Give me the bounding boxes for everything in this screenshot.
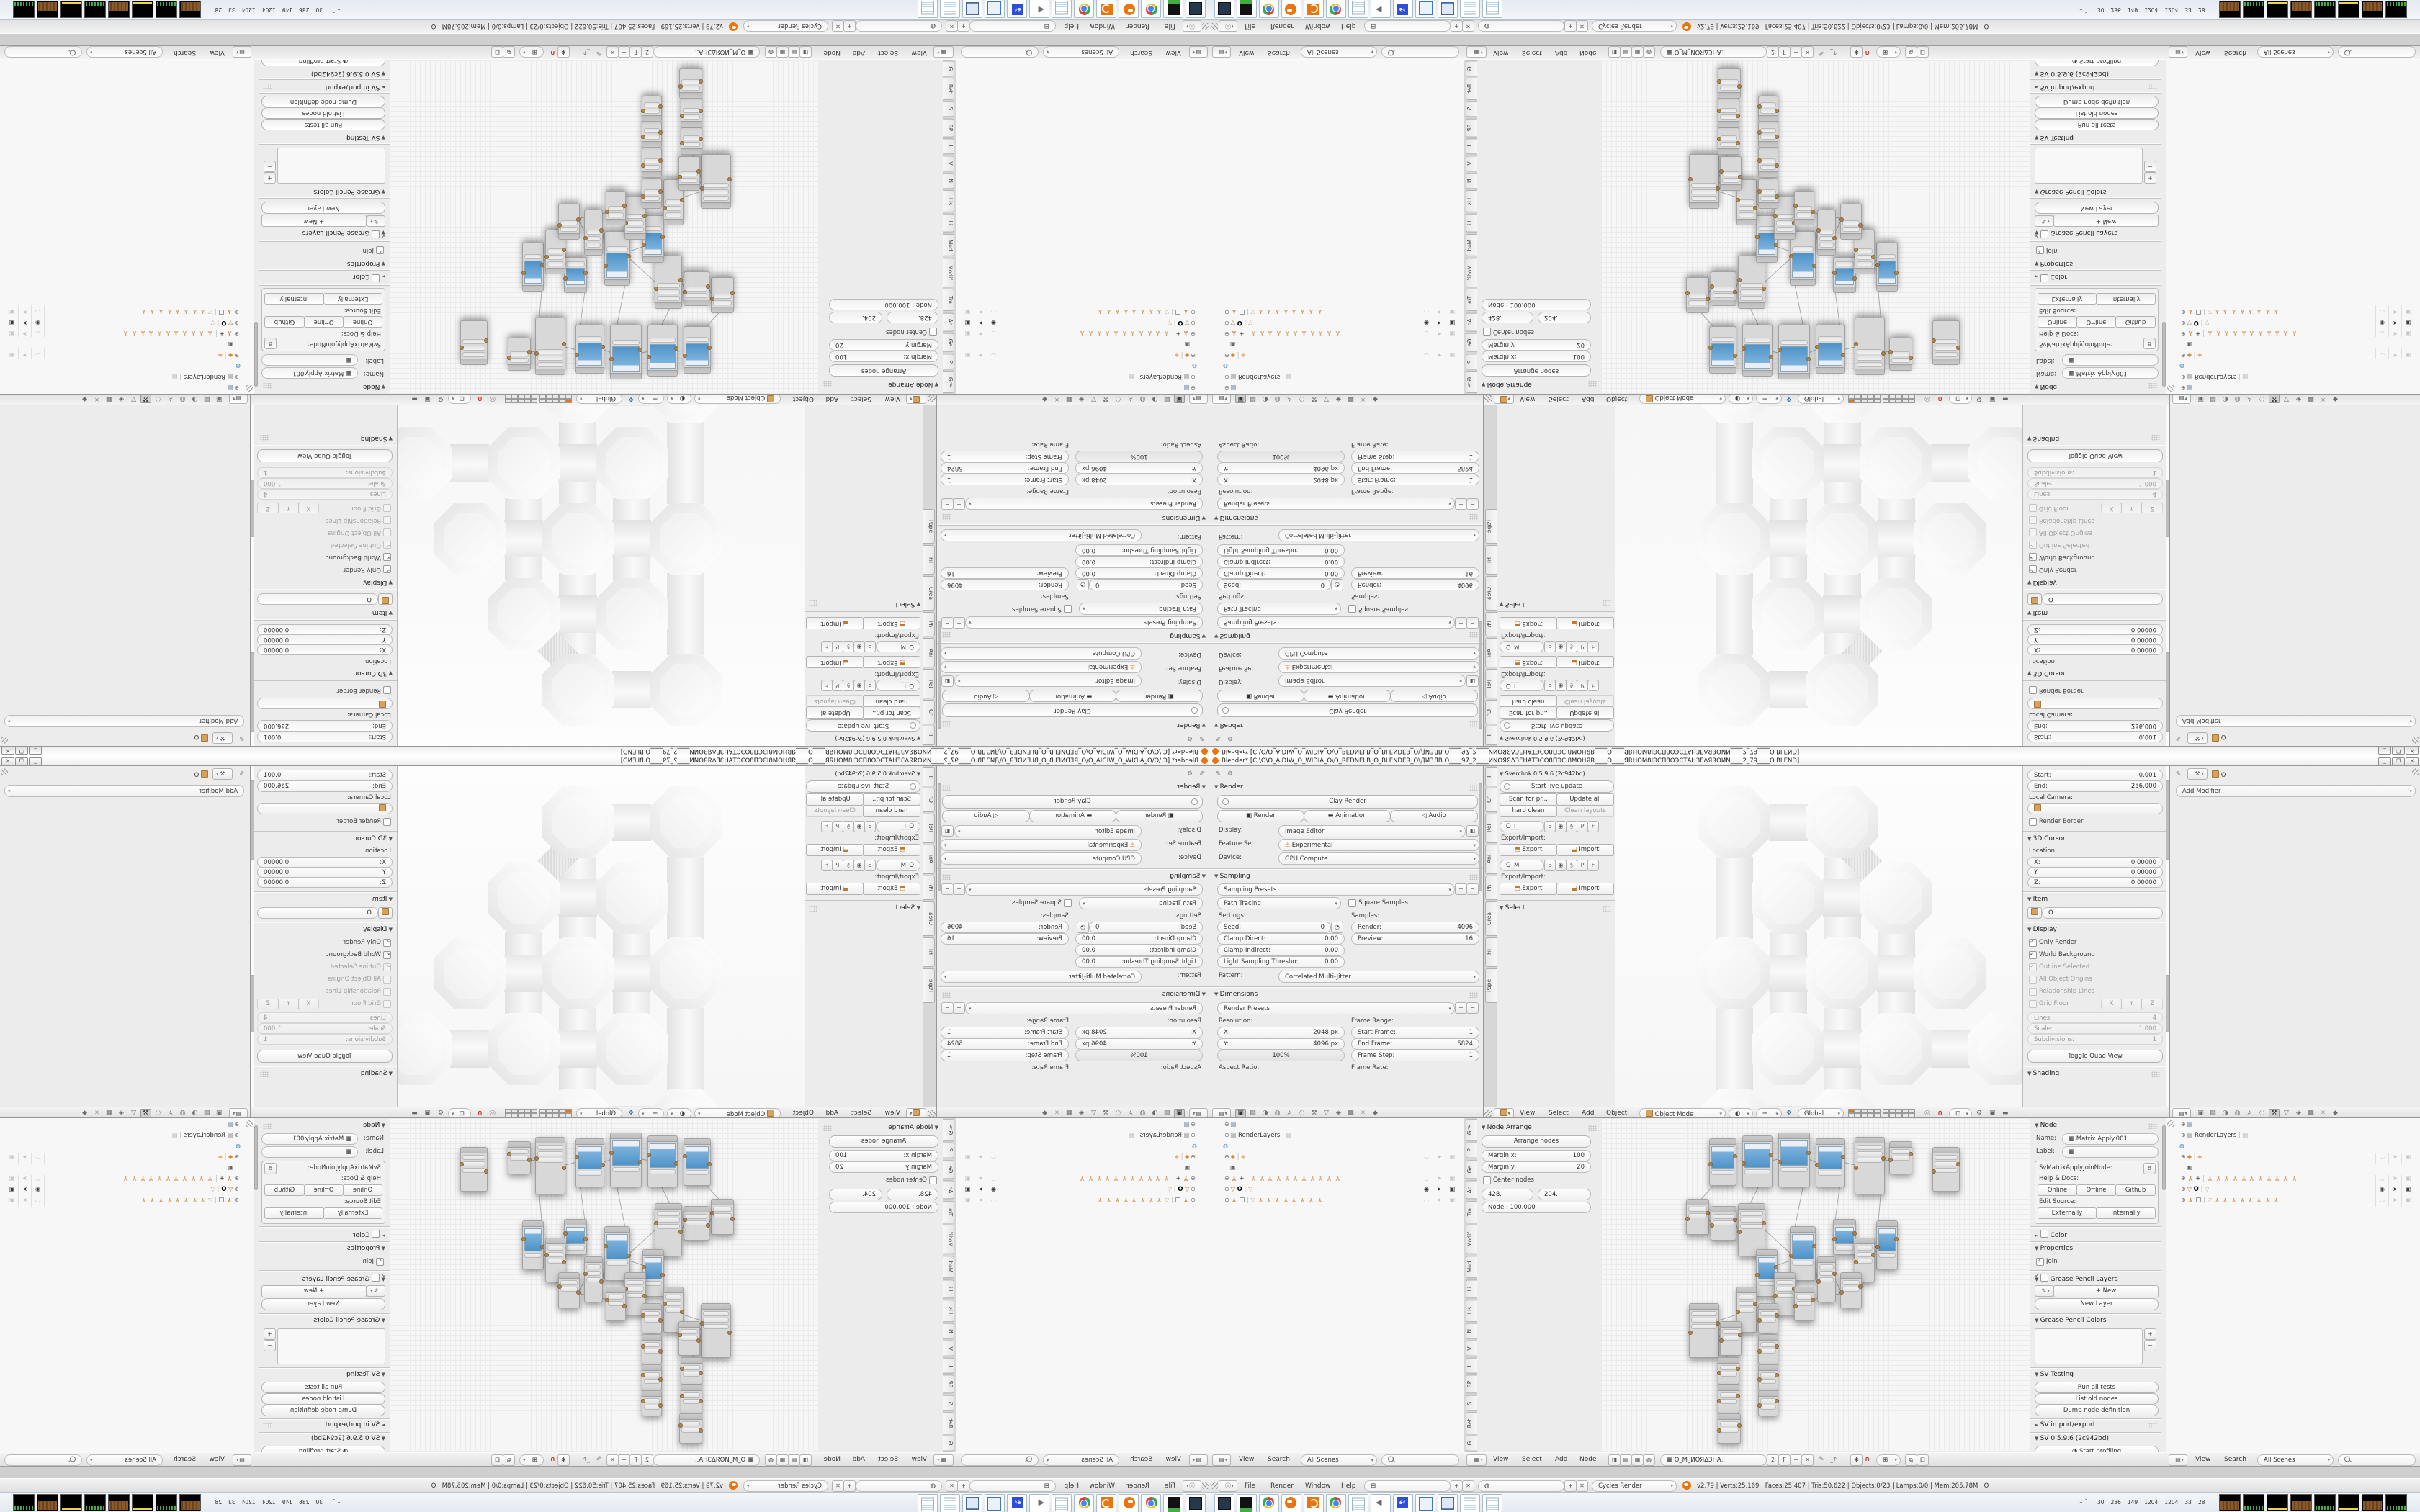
bake-button[interactable]: B (864, 860, 876, 871)
properties-tab-icon-9[interactable]: ▦ (1064, 1109, 1075, 1117)
properties-tab-icon-3[interactable]: ◍ (177, 1109, 188, 1117)
properties-tab-icon-4[interactable]: ◬ (165, 1109, 176, 1117)
outline-selected-checkbox[interactable] (383, 963, 391, 971)
shelf-tab-ge[interactable]: Ge (942, 333, 954, 352)
sv-testing-panel[interactable]: SV Testing (346, 1371, 385, 1378)
add-preset-button[interactable]: + (1455, 498, 1467, 510)
delete-scene-button[interactable]: ✕ (1576, 20, 1588, 32)
search-input[interactable] (1381, 46, 1459, 58)
center-nodes-checkbox[interactable] (929, 1176, 937, 1184)
menu-object[interactable]: Object (1606, 1107, 1627, 1119)
properties-panel[interactable]: Properties (347, 1245, 385, 1252)
node-label-field[interactable]: ▦ (261, 354, 358, 366)
tree-users-button[interactable]: 2 (641, 46, 653, 58)
taskbar-icon-chrome[interactable] (1259, 1494, 1279, 1512)
grease-pencil-colors-panel[interactable]: Grease Pencil Colors (313, 188, 385, 195)
menu-select[interactable]: Select (1549, 1107, 1569, 1119)
color-panel[interactable]: Color (353, 273, 385, 282)
grid-floor-checkbox[interactable] (2029, 504, 2037, 512)
window-title-bar[interactable]: Blender* [C:\O\O_AIDIW_O_WIDIA_O\O_REDNE… (1210, 745, 2420, 756)
shelf-tab-n[interactable]: N (942, 1323, 954, 1339)
device-dropdown[interactable]: GPU Compute (941, 647, 1142, 660)
clay-render-radio[interactable] (1191, 798, 1198, 805)
snap-magnet-icon[interactable]: ∩ (478, 1107, 483, 1119)
add-color-button[interactable]: + (2144, 1328, 2156, 1340)
axis-y-button[interactable]: Y (2121, 503, 2142, 513)
start-frame-field[interactable]: Start Frame:1 (1351, 474, 1479, 485)
sv-import-export-panel[interactable]: SV import/export (325, 84, 385, 91)
axis-x-button[interactable]: X (298, 999, 319, 1009)
panel-drag-dots[interactable] (1603, 906, 1611, 912)
delete-layout-button[interactable]: ✕ (946, 1480, 958, 1492)
grease-pencil-icon[interactable]: ✎ (2035, 1285, 2053, 1297)
properties-tab-icon-8[interactable]: ◈ (2293, 1109, 2304, 1117)
sverchok-node[interactable] (1758, 122, 1778, 148)
hard-clean-button[interactable]: hard clean (863, 695, 920, 707)
system-monitor-graph[interactable] (2243, 1, 2264, 18)
shelf-tab-mod[interactable]: Mod (1466, 1256, 1478, 1278)
system-monitor-graph[interactable] (132, 1, 153, 18)
pin-icon[interactable]: ✎ (1216, 770, 1221, 778)
toggle-quad-view-button[interactable]: Toggle Quad View (2027, 1050, 2163, 1063)
panel-dimensions[interactable]: Dimensions (1214, 991, 1258, 998)
menu-view[interactable]: View (1520, 393, 1535, 405)
bake-button[interactable]: B (1544, 680, 1556, 691)
render-camera-icon[interactable]: ▣ (1989, 1107, 1996, 1119)
area-corner-widget[interactable] (2412, 768, 2419, 775)
menu-view[interactable]: View (1166, 46, 1181, 59)
snap-magnet-icon[interactable]: ∩ (1865, 46, 1870, 59)
system-monitor-graph[interactable] (2219, 1, 2241, 18)
f-button[interactable]: F (1587, 680, 1599, 691)
sverchok-panel[interactable]: Sverchok 0.5.9.6 (2c942bd) (1500, 735, 1585, 742)
bake-button[interactable]: B (1544, 821, 1556, 832)
lock-icon[interactable]: ◧ (941, 675, 954, 687)
all-object-origins-checkbox[interactable] (2029, 528, 2037, 536)
info-editor-selector[interactable]: ⓘ (1219, 1480, 1237, 1492)
shelf-tab-rel[interactable]: Rel (923, 669, 935, 698)
properties-tab-icon-2[interactable]: ◑ (1149, 1109, 1160, 1117)
shelf-tab-bp[interactable]: BP (1466, 1374, 1478, 1393)
system-monitor-graph[interactable] (37, 1494, 58, 1511)
viewport-shading-dropdown[interactable]: ◐ (1729, 1108, 1753, 1119)
sverchok-node[interactable] (460, 320, 488, 365)
shelf-tab-t[interactable]: T (1485, 767, 1497, 786)
outliner-item[interactable]: ⊕◆ | ◆ ◡➤▣ (1210, 1153, 1464, 1164)
editor-type-selector[interactable]: ▤ (2172, 392, 2191, 404)
orientation-dropdown[interactable]: Global (1798, 393, 1844, 404)
node-editor[interactable]: GrePGeAnTraModifModLiLisNVLBPSBetG Node … (254, 47, 956, 394)
area-corner-widget[interactable] (1211, 23, 1218, 30)
outliner-item-O[interactable]: ⊕▽ O | ▽ ◉➤▣ (2166, 1186, 2420, 1197)
tree-type-texture-icon[interactable]: ▦ (1631, 1454, 1644, 1466)
menu-view[interactable]: View (2195, 46, 2210, 59)
show-eye-icon[interactable]: ◉ (1555, 821, 1567, 832)
system-monitor-graph[interactable] (2338, 1, 2359, 18)
toggle-quad-view-button[interactable]: Toggle Quad View (257, 449, 393, 462)
all-object-origins-checkbox[interactable] (2029, 976, 2037, 984)
menu-render[interactable]: Render (1126, 19, 1149, 33)
start-profiling-button[interactable]: ◔ Start profiling (261, 1446, 385, 1452)
system-monitor-graph[interactable] (2290, 1, 2312, 18)
add-layout-button[interactable]: + (1451, 20, 1463, 32)
fake-user-button[interactable]: F (629, 46, 642, 58)
grease-pencil-layers-panel[interactable]: Grease Pencil Layers (2035, 1274, 2117, 1283)
display-mode-dropdown[interactable]: All Scenes (1301, 1454, 1377, 1466)
outliner-tree[interactable]: ⊕▤⊕▤ RenderLayers | ▤ ◍⊕◆ | ◆ ◡➤▣▣⊕Y + |… (1210, 74, 1464, 391)
cursor-z-field[interactable]: Z:0.00000 (257, 877, 393, 888)
menu-view[interactable]: View (1239, 46, 1254, 59)
sverchok-node[interactable] (1833, 257, 1856, 293)
search-input[interactable] (4, 1454, 82, 1466)
outliner-item-O[interactable]: ⊕▽ O | ▽ ◉➤▣ (2166, 315, 2420, 326)
local-camera-field[interactable] (2027, 803, 2163, 814)
wrench-breadcrumb-icon[interactable]: ⚒ (212, 768, 233, 780)
sverchok-node[interactable] (701, 154, 731, 209)
panel-drag-dots[interactable] (263, 1123, 272, 1129)
light-sampling-threshold-field[interactable]: Light Sampling Thresho:0.00 (1075, 544, 1203, 556)
run-all-tests-button[interactable]: Run all tests (2035, 1382, 2159, 1393)
taskbar-icon-notepad[interactable] (1348, 0, 1368, 18)
screen-layout-selector[interactable]: ⊞ (969, 1480, 1056, 1492)
taskbar-icon-floppy-64[interactable]: 64 (1393, 0, 1413, 18)
menu-view[interactable]: View (210, 46, 225, 59)
outliner-tree[interactable]: ⊕▤⊕▤ RenderLayers | ▤ ◍⊕◆ | ◆ ◡➤▣▣⊕Y + |… (0, 1121, 254, 1438)
sverchok-node[interactable] (642, 148, 662, 178)
minimize-button[interactable]: _ (2378, 757, 2391, 766)
wrench-breadcrumb-icon[interactable]: ⚒ (212, 732, 233, 744)
outliner-item-RenderLayers[interactable]: ⊕▤ RenderLayers | ▤ (956, 369, 1210, 380)
panel-drag-dots[interactable] (942, 874, 951, 880)
display-panel[interactable]: Display (2027, 926, 2057, 933)
pivot-dropdown[interactable]: ✛ (638, 1108, 664, 1119)
snap-mode-dropdown[interactable]: ⊞ (519, 1454, 544, 1466)
grease-pencil-layers-panel[interactable]: Grease Pencil Layers (2035, 229, 2117, 238)
search-input[interactable] (2338, 1454, 2416, 1466)
f-button[interactable]: F (821, 680, 833, 691)
y-offset-field[interactable]: 204. (829, 312, 882, 323)
tools-icon[interactable]: ⚙ (1227, 770, 1233, 778)
taskbar-icon-notepad-3[interactable] (1482, 0, 1502, 18)
grease-pencil-icon[interactable]: ✎ (2035, 215, 2053, 227)
sv-testing-panel[interactable]: SV Testing (2035, 134, 2074, 141)
grid-scale-field[interactable]: Scale:1.000 (257, 478, 393, 489)
properties-tab-icon-9[interactable]: ▦ (1064, 395, 1075, 403)
menu-file[interactable]: File (1245, 1479, 1255, 1493)
sverchok-node[interactable] (535, 318, 565, 375)
node-tree-selector[interactable]: ▦ O_M_ИОЯΔЗНА... (1660, 46, 1767, 58)
offline-button[interactable]: Offline (304, 316, 344, 328)
shelf-tab-bet[interactable]: Bet (942, 1412, 954, 1434)
render-engine-selector[interactable]: Cycles Render (743, 1480, 828, 1492)
render-border-checkbox[interactable] (2029, 686, 2037, 694)
render-samples-field[interactable]: Render:4096 (941, 579, 1069, 590)
remove-preset-button[interactable]: − (1466, 883, 1479, 895)
shelf-tab-grea[interactable]: Grea (923, 576, 935, 611)
shading-panel[interactable]: Shading (2027, 1070, 2059, 1077)
taskbar-icon-notepad[interactable] (1052, 1494, 1072, 1512)
gp-new-button[interactable]: + New (2053, 215, 2159, 227)
scene-selector[interactable]: ◍ (1478, 1480, 1564, 1492)
new-tree-button[interactable]: + (618, 46, 630, 58)
shelf-tab-s[interactable]: S (1466, 1395, 1478, 1411)
cursor-x-field[interactable]: X:0.00000 (257, 644, 393, 655)
node-shelf-tabs[interactable]: GrePGeAnTraModifModLiLisNVLBPSBetG (1464, 1118, 1477, 1452)
properties-tab-icon-3[interactable]: ◍ (177, 395, 188, 403)
taskbar-icon-screen-capture[interactable] (1214, 0, 1234, 18)
item-panel[interactable]: Item (372, 896, 393, 903)
layers-grid[interactable] (505, 395, 572, 403)
display-mode-dropdown[interactable]: All Scenes (2257, 1454, 2334, 1466)
auto-render-bug-icon[interactable]: ✱ (557, 1454, 570, 1466)
seed-field[interactable]: Seed:0 (1089, 579, 1203, 590)
clip-start-field[interactable]: Start:0.001 (2027, 770, 2163, 781)
sverchok-node[interactable] (1742, 325, 1773, 377)
remove-preset-button[interactable]: − (1466, 617, 1479, 629)
outliner-item[interactable]: ▣ (2166, 1164, 2420, 1175)
taskbar-icon-removable-drive[interactable] (1163, 0, 1183, 18)
editor-type-selector[interactable]: ▤ (2169, 1454, 2187, 1466)
animate-icon[interactable]: § (1566, 680, 1577, 691)
properties-tab-icon-7[interactable]: ▽ (1321, 395, 1332, 403)
p-button[interactable]: P (832, 641, 843, 652)
search-input[interactable] (4, 46, 82, 58)
editor-type-selector[interactable]: ▦ (933, 1454, 954, 1466)
online-button[interactable]: Online (343, 1184, 382, 1196)
tool-shelf-tabs[interactable]: TCrRelAniPhGreaFilPape (923, 766, 936, 1107)
sverchok-node[interactable] (558, 204, 580, 240)
sverchok-panel[interactable]: Sverchok 0.5.9.6 (2c942bd) (835, 770, 920, 777)
sverchok-node[interactable] (1738, 256, 1765, 309)
panel-drag-dots[interactable] (2148, 84, 2157, 89)
paste-nodes-icon[interactable]: ⧠ (1917, 1454, 1929, 1466)
sverchok-node[interactable] (522, 1220, 544, 1269)
properties-tab-icon-4[interactable]: ◬ (1284, 1109, 1295, 1117)
scrollbar[interactable] (1479, 621, 1482, 729)
shelf-tab-p[interactable]: P (1466, 354, 1478, 369)
sverchok-node[interactable] (1720, 1321, 1742, 1356)
frame-step-field[interactable]: Frame Step:1 (941, 451, 1069, 462)
p-button[interactable]: P (1577, 680, 1588, 691)
properties-tab-icon-8[interactable]: ◈ (116, 1109, 127, 1117)
offline-button[interactable]: Offline (304, 1184, 344, 1196)
properties-panel[interactable]: Properties (2035, 1245, 2073, 1252)
taskbar-icon-image-viewer[interactable] (1415, 1494, 1435, 1512)
remove-preset-button[interactable]: − (941, 498, 954, 510)
node-graph-canvas[interactable] (1601, 60, 2030, 394)
properties-tab-icon-3[interactable]: ◍ (1272, 1109, 1283, 1117)
menu-search[interactable]: Search (1130, 1453, 1152, 1466)
properties-tabs[interactable]: ▣▤◑◍◬◌⚒▽◈▦✳◆ (1234, 1108, 1381, 1118)
sverchok-node[interactable] (1833, 1219, 1856, 1255)
node-distance-field[interactable]: Node : 100.000 (1482, 299, 1591, 310)
node-panel[interactable]: Node (2035, 1122, 2057, 1129)
auto-render-bug-icon[interactable]: ✱ (557, 46, 570, 58)
outliner-item-□[interactable]: ⊕Y □ | ▽ Y Y Y Y Y Y Y Y ◡➤▣ (0, 1197, 254, 1207)
copy-icon[interactable]: ⧉ (2143, 338, 2156, 349)
online-button[interactable]: Online (343, 316, 382, 328)
taskbar-icon-notepad[interactable] (1348, 1494, 1368, 1512)
sverchok-node[interactable] (1711, 1206, 1736, 1241)
grid-scale-field[interactable]: Scale:1.000 (257, 1023, 393, 1034)
proportional-edit-icon[interactable]: ◎ (1924, 1107, 1930, 1119)
menu-help[interactable]: Help (1341, 19, 1356, 33)
outliner-item[interactable]: ⊕◆ | ◆ ◡➤▣ (2166, 1153, 2420, 1164)
shelf-tab-v[interactable]: V (1466, 1341, 1478, 1356)
sverchok-node[interactable] (558, 1272, 580, 1308)
sampling-presets-dropdown[interactable]: Sampling Presets (965, 616, 1203, 629)
menu-view[interactable]: View (912, 46, 927, 59)
sverchok-node[interactable] (1889, 1141, 1912, 1174)
delete-layout-button[interactable]: ✕ (946, 20, 958, 32)
sverchok-node[interactable] (701, 1303, 731, 1358)
sverchok-node[interactable] (642, 1364, 662, 1390)
cursor-panel[interactable]: 3D Cursor (2027, 670, 2066, 677)
outliner-item-RenderLayers[interactable]: ⊕▤ RenderLayers | ▤ (1210, 1132, 1464, 1143)
object-icon-button[interactable] (378, 907, 393, 919)
clay-render-button[interactable]: Clay Render (1217, 795, 1478, 809)
outliner-item[interactable]: ⊕▤ (956, 380, 1210, 391)
outline-selected-checkbox[interactable] (2029, 541, 2037, 549)
layers-grid[interactable] (1848, 1109, 1915, 1117)
taskbar-icon-notepad-3[interactable] (918, 1494, 938, 1512)
snap-mode-dropdown[interactable]: ⊞ (519, 46, 544, 58)
clamp-direct-field[interactable]: Clamp Direct:0.00 (1217, 567, 1345, 579)
shelf-tab-ph[interactable]: Ph (923, 876, 935, 900)
integrator-dropdown[interactable]: Path Tracing (1217, 897, 1341, 909)
outliner-item[interactable]: ⊕◆ | ◆ ◡➤▣ (2166, 348, 2420, 359)
editor-type-selector[interactable]: ▤ (229, 392, 248, 404)
list-old-nodes-button[interactable]: List old nodes (2035, 1393, 2159, 1405)
light-sampling-threshold-field[interactable]: Light Sampling Thresho:0.00 (1217, 544, 1345, 556)
panel-drag-dots[interactable] (1469, 992, 1478, 998)
render-camera-icon[interactable]: ▣ (424, 393, 431, 405)
editor-type-selector[interactable]: ▤ (233, 46, 251, 58)
taskbar-icon-chrome-2[interactable] (1326, 0, 1346, 18)
sverchok-node[interactable] (1689, 154, 1719, 209)
outliner-item[interactable]: ⊕▤ (1210, 1121, 1464, 1132)
new-layer-button[interactable]: New Layer (261, 202, 385, 214)
properties-tab-icon-5[interactable]: ◌ (1113, 1109, 1124, 1117)
outliner-item[interactable]: ◍ (1210, 1143, 1464, 1153)
start-live-update-button[interactable]: Start live update (1500, 719, 1614, 732)
new-layer-button[interactable]: New Layer (261, 1298, 385, 1310)
menu-file[interactable]: File (1245, 19, 1255, 33)
grid-scale-field[interactable]: Scale:1.000 (2027, 478, 2163, 489)
animation-button[interactable]: ▬ Animation (1029, 690, 1116, 702)
render-button[interactable]: ▣ Render (1116, 810, 1203, 822)
audio-button[interactable]: ◁ Audio (942, 810, 1030, 822)
sverchok-node[interactable] (1932, 320, 1960, 365)
outliner-item[interactable]: ⊕◆ | ◆ ◡➤▣ (956, 1153, 1210, 1164)
shelf-tab-rel[interactable]: Rel (923, 814, 935, 843)
delete-scene-button[interactable]: ✕ (832, 20, 844, 32)
render-engine-selector[interactable]: Cycles Render (743, 20, 828, 32)
properties-tab-icon-3[interactable]: ◍ (1272, 395, 1283, 403)
shelf-tab-fil[interactable]: Fil (1485, 937, 1497, 967)
internally-button[interactable]: Internally (2096, 293, 2156, 305)
device-dropdown[interactable]: GPU Compute (1278, 647, 1479, 660)
grid-scale-field[interactable]: Scale:1.000 (2027, 1023, 2163, 1034)
start-profiling-button[interactable]: ◔ Start profiling (261, 60, 385, 66)
paste-nodes-icon[interactable]: ⧠ (491, 1454, 503, 1466)
import-button[interactable]: ⬓ Import (1556, 617, 1614, 629)
delete-scene-button[interactable]: ✕ (832, 1480, 844, 1492)
taskbar-icon-floppy-64[interactable]: 64 (1007, 1494, 1027, 1512)
toggle-quad-view-button[interactable]: Toggle Quad View (2027, 449, 2163, 462)
area-corner-widget[interactable] (928, 395, 936, 402)
outliner-item[interactable]: ⊕▤ (956, 1121, 1210, 1132)
sverchok-node[interactable] (564, 257, 587, 293)
import-button[interactable]: ⬓ Import (1556, 883, 1614, 895)
sv-testing-panel[interactable]: SV Testing (346, 134, 385, 141)
add-preset-button[interactable]: + (1455, 1002, 1467, 1014)
editor-type-selector[interactable]: ▦ (1466, 1454, 1487, 1466)
properties-tab-icon-4[interactable]: ◬ (1284, 395, 1295, 403)
mode-dropdown[interactable]: Object Mode (1639, 1108, 1726, 1119)
editor-type-selector[interactable] (1494, 392, 1514, 404)
shading-panel[interactable]: Shading (361, 435, 393, 442)
shelf-tab-li[interactable]: Li (942, 1279, 954, 1298)
shelf-tab-ge[interactable]: Ge (942, 1160, 954, 1179)
properties-tab-icon-2[interactable]: ◑ (1260, 395, 1270, 403)
shelf-tab-l[interactable]: L (942, 139, 954, 155)
properties-tab-icon-4[interactable]: ◬ (165, 395, 176, 403)
scrollbar[interactable] (251, 652, 254, 732)
add-scene-button[interactable]: + (843, 1480, 856, 1492)
square-samples-checkbox[interactable] (1064, 899, 1072, 907)
world-background-checkbox[interactable] (383, 553, 391, 561)
menu-add[interactable]: Add (1582, 393, 1594, 405)
taskbar-icon-chrome[interactable] (1141, 1494, 1161, 1512)
x-offset-field[interactable]: 428. (887, 1189, 938, 1200)
area-corner-widget[interactable] (1484, 1110, 1492, 1117)
list-old-nodes-button[interactable]: List old nodes (2035, 107, 2159, 119)
node-arrange-panel[interactable]: Node Arrange (888, 1124, 938, 1131)
properties-tab-icon-8[interactable]: ◈ (1333, 395, 1344, 403)
add-preset-button[interactable]: + (953, 617, 965, 629)
system-monitor-graph[interactable] (60, 1, 82, 18)
snap-element-dropdown[interactable]: ⊡ (1949, 393, 1972, 404)
list-old-nodes-button[interactable]: List old nodes (261, 1393, 385, 1405)
shelf-tab-l[interactable]: L (942, 1358, 954, 1374)
properties-tab-icon-5[interactable]: ◌ (1113, 395, 1124, 403)
cursor-x-field[interactable]: X:0.00000 (2027, 644, 2163, 655)
outliner-item-RenderLayers[interactable]: ⊕▤ RenderLayers | ▤ (1210, 369, 1464, 380)
copy-icon[interactable]: ⧉ (264, 1163, 277, 1174)
shelf-tab-g[interactable]: G (1466, 1436, 1478, 1452)
menu-window[interactable]: Window (1090, 19, 1116, 33)
scrollbar[interactable] (254, 1125, 258, 1190)
properties-tab-icon-0[interactable]: ▣ (1174, 395, 1185, 403)
scrollbar[interactable] (251, 780, 254, 860)
taskbar-icon-notepad-3[interactable] (918, 0, 938, 18)
properties-tab-icon-1[interactable]: ▤ (1247, 1109, 1258, 1117)
snap-element-dropdown[interactable]: ⊡ (448, 1108, 471, 1119)
gp-colors-list[interactable] (2035, 148, 2143, 184)
tree-type-shader-icon[interactable]: ◨ (799, 1454, 812, 1466)
tools-icon[interactable]: ⚙ (1227, 734, 1233, 742)
export-button[interactable]: ⬒ Export (1500, 883, 1557, 895)
scan-for-props-button[interactable]: Scan for pr... (863, 706, 920, 719)
sverchok-node[interactable] (1778, 1133, 1810, 1187)
add-preset-button[interactable]: + (953, 1002, 965, 1014)
render-camera-icon[interactable]: ▣ (424, 1107, 431, 1119)
properties-tab-icon-6[interactable]: ⚒ (2269, 1109, 2280, 1117)
unlink-tree-button[interactable]: ✕ (1801, 46, 1814, 58)
sverchok-node[interactable] (642, 1390, 662, 1416)
pin-icon[interactable]: ✎ (1199, 734, 1204, 742)
